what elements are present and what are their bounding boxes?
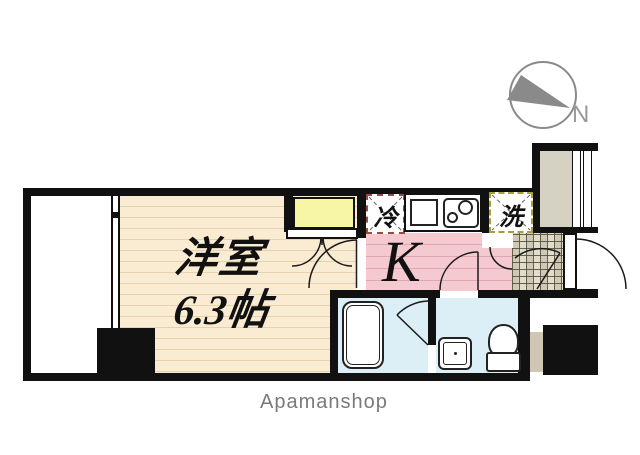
floor-plan: N 洋室 6.3帖 K 冷 洗 Apamanshop	[0, 0, 640, 455]
room-door-opening	[357, 238, 366, 290]
wall-left	[23, 188, 31, 381]
entrance-door	[563, 233, 577, 290]
neighbor-strip	[530, 332, 543, 372]
entrance-hall-tiles	[512, 233, 565, 291]
compass: N	[507, 62, 589, 128]
vanity-drain	[454, 352, 457, 355]
wall-alcove-top	[532, 143, 598, 151]
wall-bath-washroom	[428, 290, 436, 345]
compass-label: N	[572, 101, 589, 128]
wall-room-kitchen	[357, 188, 366, 240]
bathroom-door-opening	[428, 345, 436, 373]
wall-alcove-left	[532, 143, 540, 233]
washer-label: 洗	[489, 197, 533, 232]
window-frame-cap	[111, 212, 120, 218]
alcove-window-line-inner	[583, 149, 592, 229]
alcove-window-line-outer	[572, 149, 581, 229]
wall-counter-washer	[482, 188, 489, 233]
washer-niche-floor	[482, 233, 513, 248]
refrigerator-label: 冷	[366, 198, 405, 233]
brand-logo: Apamanshop	[260, 391, 388, 414]
bathtub-inner-rim	[346, 305, 380, 365]
stove-burner-small	[447, 212, 458, 223]
stove-burner-large	[458, 200, 473, 215]
compass-circle	[510, 62, 576, 128]
room-size-label: 6.3帖	[108, 276, 337, 337]
entrance-door-arc	[576, 239, 626, 289]
wall-entry-nub	[576, 289, 598, 297]
alcove	[540, 151, 572, 229]
bathtub	[342, 301, 384, 369]
structure-block	[543, 325, 598, 375]
toilet-tank	[486, 352, 521, 372]
wall-bottom	[23, 373, 530, 381]
kitchen-label: K	[382, 228, 421, 295]
vanity-sink	[438, 337, 472, 370]
compass-needle	[507, 75, 570, 108]
kitchen-sink	[410, 199, 438, 226]
